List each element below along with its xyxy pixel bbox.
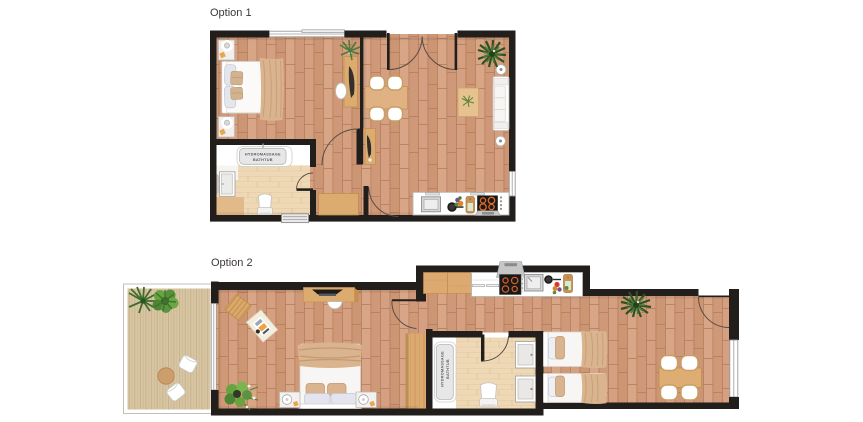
svg-text:HYDROMASSAGE: HYDROMASSAGE bbox=[441, 351, 445, 387]
svg-text:HYDROMASSAGE: HYDROMASSAGE bbox=[245, 152, 281, 156]
svg-text:Option 2: Option 2 bbox=[211, 257, 253, 269]
svg-text:BATHTUB: BATHTUB bbox=[446, 359, 450, 379]
svg-text:Option 1: Option 1 bbox=[210, 7, 252, 19]
svg-text:BATHTUB: BATHTUB bbox=[253, 158, 273, 162]
